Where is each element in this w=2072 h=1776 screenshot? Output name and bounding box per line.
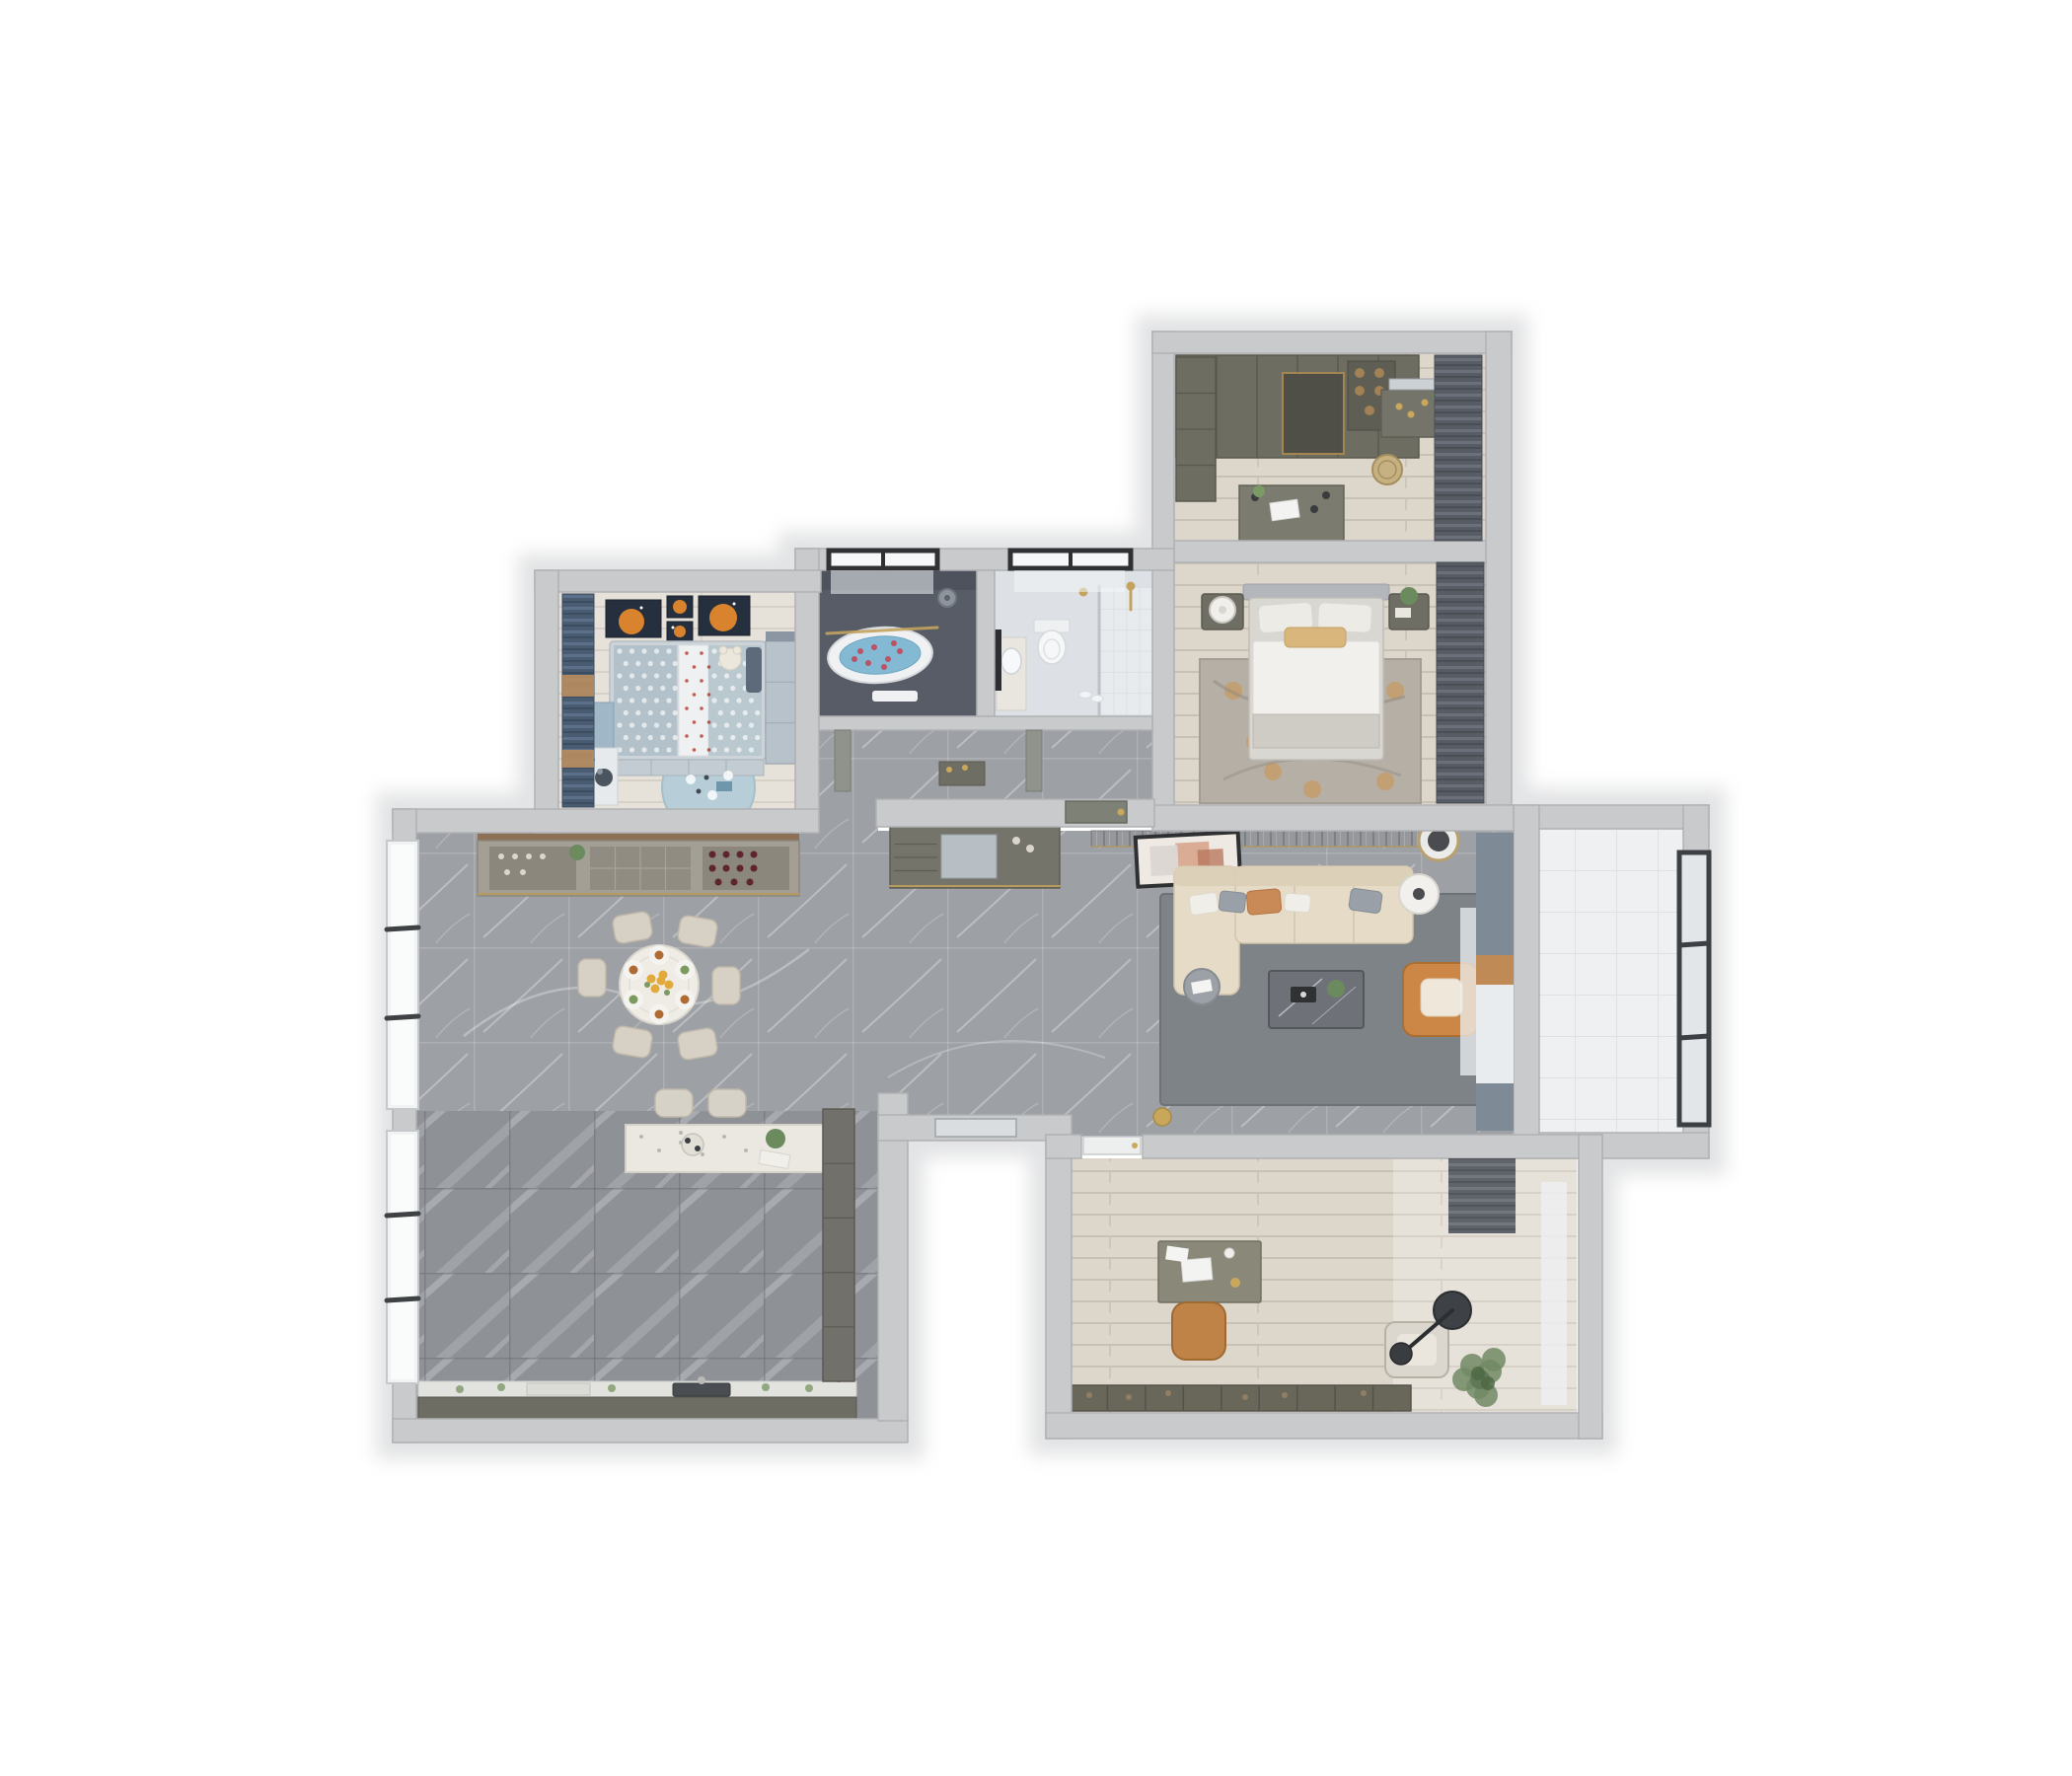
kids-duvet-dots-right xyxy=(749,698,754,703)
kitchen-island-tray xyxy=(682,1134,703,1155)
kitchen-cutting-board xyxy=(527,1383,590,1395)
sideboard-glasses xyxy=(526,853,532,859)
kitchen-island-terrazzo xyxy=(701,1152,704,1156)
dining-chair xyxy=(677,1027,718,1061)
balcony-window-bar xyxy=(1679,1036,1709,1038)
coffee-table-plant xyxy=(1327,980,1345,998)
kitchen-counter-top xyxy=(418,1381,856,1397)
bath-towel xyxy=(872,691,918,702)
sideboard-glasses xyxy=(504,869,510,875)
kitchen-island-terrazzo xyxy=(679,1131,683,1135)
corridor-connector-floor xyxy=(819,797,878,837)
kids-duvet-dots-left xyxy=(648,661,653,666)
study-books xyxy=(1282,1392,1288,1398)
kids-runner-dots xyxy=(700,706,703,710)
kids-duvet-dots-left xyxy=(673,735,678,740)
coffee-table-cup xyxy=(1300,992,1306,998)
kitchen-counter-greens xyxy=(805,1384,813,1392)
kids-curtain-tan-band xyxy=(562,750,594,768)
living-curtain-bottom xyxy=(1476,1083,1514,1131)
closet-vanity-cosmetics xyxy=(1422,400,1429,407)
bath-slipper xyxy=(1091,696,1103,703)
sideboard-glasses xyxy=(540,853,546,859)
sideboard-glasses xyxy=(520,869,526,875)
kitchen-faucet xyxy=(698,1376,705,1384)
dining-centerpiece-flowers xyxy=(651,985,660,994)
kids-duvet-dots-right xyxy=(749,722,754,727)
kitchen-island-terrazzo xyxy=(657,1148,661,1152)
bathtub-rose-petals xyxy=(851,656,857,662)
study-corner-curtain xyxy=(1448,1158,1516,1233)
kids-duvet-dots-left xyxy=(660,686,665,691)
wine-bottles xyxy=(737,851,744,858)
wine-bottles xyxy=(709,851,716,858)
wall xyxy=(1152,332,1512,353)
wall xyxy=(1579,1135,1602,1439)
bathtub-rose-petals xyxy=(891,640,897,646)
study-plant-leaves-dark xyxy=(1471,1367,1485,1380)
dining-chair xyxy=(612,911,653,944)
kids-runner-dots xyxy=(685,651,689,655)
closet-vanity-cosmetics xyxy=(1396,404,1403,410)
kids-duvet-dots-left xyxy=(629,673,634,678)
closet-desk-items xyxy=(1310,505,1318,513)
kids-picture-planet xyxy=(674,626,686,637)
kids-duvet-dots-right xyxy=(718,735,723,740)
kids-duvet-dots-left xyxy=(624,686,629,691)
kids-duvet-dots-left xyxy=(673,686,678,691)
wall xyxy=(535,570,821,592)
study-sheer-curtain xyxy=(1541,1182,1567,1405)
kids-duvet-dots-left xyxy=(617,722,622,727)
kids-duvet-dots-right xyxy=(755,735,760,740)
kids-picture-planet xyxy=(709,604,737,631)
balcony-window-bar xyxy=(1679,943,1709,945)
kids-duvet-dots-left xyxy=(648,710,653,715)
dining-centerpiece-flowers xyxy=(665,981,674,990)
kids-teddy-ear xyxy=(733,646,741,654)
kids-rug-toys-white xyxy=(723,771,733,780)
master-pillow-accent xyxy=(1285,628,1346,647)
bathtub-rose-petals xyxy=(857,648,863,654)
kids-duvet-dots-left xyxy=(660,710,665,715)
wine-bottles xyxy=(715,879,722,886)
dining-food-green xyxy=(629,996,638,1004)
kids-rug-toy-blue xyxy=(716,781,732,791)
master-nightstand-plant xyxy=(1400,587,1418,605)
wall xyxy=(1046,1135,1072,1439)
living-side-table-decor xyxy=(1413,888,1425,900)
dining-window-glass xyxy=(391,845,414,1105)
entry-cabinet-mirror xyxy=(941,835,997,878)
kids-duvet-dots-right xyxy=(736,698,741,703)
study-desk-mug xyxy=(1224,1248,1234,1258)
kids-duvet-dots-left xyxy=(641,698,646,703)
wall xyxy=(1514,805,1539,1158)
shower-head-core xyxy=(944,595,950,601)
kids-duvet-dots-right xyxy=(711,648,716,653)
wall xyxy=(1046,1135,1081,1158)
kitchen-counter-greens xyxy=(456,1385,464,1393)
kids-duvet-dots-left xyxy=(629,648,634,653)
kids-duvet-dots-left xyxy=(654,698,659,703)
sideboard-glasses xyxy=(512,853,518,859)
kids-duvet-dots-left xyxy=(635,686,640,691)
bathroom-dark-window-light xyxy=(831,570,933,594)
kids-bed-runner xyxy=(679,645,708,756)
kids-duvet-dots-left xyxy=(641,722,646,727)
kids-wardrobe xyxy=(766,641,795,764)
wall xyxy=(1486,332,1512,807)
kids-rug-toys-white xyxy=(707,790,717,800)
sofa-pillow xyxy=(1189,892,1220,916)
kitchen-island-terrazzo xyxy=(639,1135,643,1139)
kids-runner-dots xyxy=(707,748,711,752)
study-books xyxy=(1165,1390,1171,1396)
kids-duvet-dots-left xyxy=(666,673,671,678)
bathtub-rose-petals xyxy=(881,664,887,670)
kids-picture-stars xyxy=(672,627,675,629)
master-rug-orange-patches xyxy=(1303,780,1321,798)
wall xyxy=(878,1093,908,1421)
closet-curtain xyxy=(1435,355,1482,541)
kids-picture-stars xyxy=(640,607,643,610)
kitchen-tall-cabinet xyxy=(823,1109,854,1381)
kids-picture-planet xyxy=(619,609,644,634)
corridor-console-decor xyxy=(946,767,952,773)
sofa-pillow xyxy=(1284,893,1310,913)
closet-desk-papers xyxy=(1270,499,1299,521)
bar-stool xyxy=(708,1089,746,1117)
bathtub-rose-petals xyxy=(871,644,877,650)
kids-runner-dots xyxy=(707,693,711,697)
wine-bottles xyxy=(751,851,758,858)
kids-duvet-dots-left xyxy=(641,673,646,678)
study-books xyxy=(1086,1392,1092,1398)
wall xyxy=(1152,805,1514,831)
dining-chair xyxy=(612,1025,653,1059)
sideboard-recess xyxy=(489,847,576,890)
study-bookshelf xyxy=(1070,1385,1411,1411)
living-floor-strip xyxy=(1058,1111,1514,1137)
dining-food-warm xyxy=(681,996,690,1004)
kids-runner-dots xyxy=(685,734,689,738)
wall xyxy=(393,1419,908,1443)
kids-duvet-dots-left xyxy=(673,661,678,666)
kitchen-island-terrazzo xyxy=(744,1148,748,1152)
kids-duvet-dots-right xyxy=(743,735,748,740)
wine-bottles xyxy=(737,865,744,872)
corridor-floor xyxy=(819,728,1152,803)
wine-bottles xyxy=(747,879,754,886)
kids-duvet-dots-right xyxy=(724,698,729,703)
kids-runner-dots xyxy=(693,693,697,697)
kids-wardrobe-shelf xyxy=(766,631,795,641)
sofa-pillow xyxy=(1219,891,1246,914)
dining-window-bar xyxy=(387,927,418,929)
study-door-handle xyxy=(1132,1143,1138,1148)
kids-duvet-dots-right xyxy=(736,722,741,727)
living-gold-stool xyxy=(1153,1108,1171,1126)
bathtub-rose-petals xyxy=(897,648,903,654)
living-curtain-tan xyxy=(1476,955,1514,985)
kitchen-window-bar xyxy=(387,1214,418,1216)
study-desk-gold-cup xyxy=(1230,1278,1240,1288)
closet-shelf-bags xyxy=(1355,368,1365,378)
kids-curtain xyxy=(562,594,594,807)
kids-duvet-dots-right xyxy=(730,686,735,691)
study-office-chair xyxy=(1172,1302,1225,1360)
study-books xyxy=(1361,1390,1367,1396)
kids-duvet-dots-left xyxy=(629,698,634,703)
kids-duvet-dots-left xyxy=(635,661,640,666)
bathroom-door xyxy=(835,730,851,791)
kids-duvet-dots-right xyxy=(730,710,735,715)
wine-bottles xyxy=(723,851,730,858)
master-nightstand-book xyxy=(1395,608,1411,618)
kids-teddy-ear xyxy=(719,646,727,654)
kids-duvet-dots-right xyxy=(711,698,716,703)
kids-duvet-dots-left xyxy=(635,735,640,740)
kitchen-counter-front xyxy=(418,1397,856,1421)
kids-duvet-dots-left xyxy=(654,722,659,727)
kids-picture-planet xyxy=(673,600,687,614)
kids-rug-toys-dark xyxy=(697,789,702,794)
kids-duvet-dots-left xyxy=(629,722,634,727)
kids-duvet-dots-right xyxy=(724,747,729,752)
kids-desk-items xyxy=(597,769,603,775)
kids-duvet-dots-left xyxy=(666,722,671,727)
kids-runner-dots xyxy=(693,748,697,752)
master-curtain xyxy=(1437,562,1484,803)
kids-duvet-dots-left xyxy=(654,648,659,653)
kitchen-island xyxy=(626,1125,823,1172)
closet-basket xyxy=(1372,455,1402,484)
kitchen-island-plant xyxy=(766,1129,785,1148)
master-rug-orange-patches xyxy=(1376,773,1394,790)
kids-duvet-dots-left xyxy=(641,648,646,653)
accent-armchair-cushion xyxy=(1421,979,1462,1016)
kids-pillow-dark xyxy=(746,647,762,693)
kids-duvet-dots-right xyxy=(718,686,723,691)
kids-duvet-dots-left xyxy=(660,735,665,740)
living-curtain-top xyxy=(1476,833,1514,955)
service-niche-door xyxy=(935,1119,1016,1137)
kids-duvet-dots-right xyxy=(718,710,723,715)
wall xyxy=(1046,1413,1602,1439)
closet-shelf-bags xyxy=(1355,386,1365,396)
kids-duvet-dots-left xyxy=(666,698,671,703)
sofa-backrest xyxy=(1174,866,1413,886)
kids-duvet-dots-right xyxy=(736,747,741,752)
kids-duvet-dots-right xyxy=(730,735,735,740)
kids-runner-dots xyxy=(693,665,697,669)
balcony-window xyxy=(1679,852,1709,1125)
kids-duvet-dots-right xyxy=(743,710,748,715)
bathroom-mirror-cabinet xyxy=(995,629,1001,691)
kids-runner-dots xyxy=(700,734,703,738)
kids-duvet-dots-left xyxy=(673,710,678,715)
bathroom-basin xyxy=(1001,648,1021,674)
wine-bottles xyxy=(723,865,730,872)
dining-chair xyxy=(578,959,606,997)
entry-cabinet-decor xyxy=(1012,837,1020,845)
closet-vanity-mirror xyxy=(1389,379,1435,390)
wall xyxy=(1152,332,1174,817)
bathroom-door xyxy=(1026,730,1042,791)
living-ceiling-light-core xyxy=(1428,830,1449,851)
sofa-pillow xyxy=(1349,888,1383,914)
bathroom-light-window-light xyxy=(1014,570,1125,592)
kids-duvet-dots-left xyxy=(624,735,629,740)
kitchen-window-glass xyxy=(391,1135,414,1379)
bath-slipper xyxy=(1079,692,1091,699)
dining-centerpiece-flowers xyxy=(657,977,666,986)
dining-chair xyxy=(677,915,718,948)
kids-runner-dots xyxy=(685,679,689,683)
kids-duvet-dots-left xyxy=(617,648,622,653)
kids-duvet-dots-left xyxy=(654,673,659,678)
dining-food-green xyxy=(681,966,690,975)
floor-plan-canvas xyxy=(0,0,2072,1776)
closet-shelf-bags xyxy=(1365,406,1374,415)
kitchen-counter-greens xyxy=(497,1383,505,1391)
wall xyxy=(819,716,1152,730)
study-plant-leaves xyxy=(1482,1348,1506,1371)
kids-duvet-dots-left xyxy=(624,710,629,715)
kids-duvet-dots-left xyxy=(617,698,622,703)
kids-duvet-dots-right xyxy=(724,722,729,727)
closet-shelf-bags xyxy=(1374,368,1384,378)
wine-bottles xyxy=(751,865,758,872)
kids-runner-dots xyxy=(707,665,711,669)
kids-duvet-dots-left xyxy=(666,747,671,752)
dining-chair xyxy=(712,967,740,1004)
wall xyxy=(535,570,558,833)
corridor-console xyxy=(939,762,985,785)
master-bed-blanket xyxy=(1253,714,1379,748)
dining-food-warm xyxy=(629,966,638,975)
wine-bottles xyxy=(709,865,716,872)
kids-duvet-dots-left xyxy=(629,747,634,752)
sofa-pillow xyxy=(1246,889,1282,916)
kids-runner-dots xyxy=(685,706,689,710)
kitchen-island-cups xyxy=(685,1138,691,1144)
kids-duvet-dots-left xyxy=(624,661,629,666)
kids-duvet-dots-right xyxy=(711,673,716,678)
entry-door-handle xyxy=(1118,809,1125,816)
kids-curtain-tan-band xyxy=(562,675,594,697)
kids-duvet-dots-left xyxy=(666,648,671,653)
bathtub-rose-petals xyxy=(865,660,871,666)
kids-duvet-dots-right xyxy=(755,710,760,715)
kitchen-counter-greens xyxy=(762,1383,770,1391)
kids-duvet-dots-left xyxy=(648,735,653,740)
closet-desk-flowers xyxy=(1253,485,1265,497)
kitchen-sink xyxy=(673,1383,730,1396)
living-curtain-sheer xyxy=(1476,985,1514,1083)
wall xyxy=(1143,1135,1602,1158)
kids-duvet-dots-left xyxy=(641,747,646,752)
kids-runner-dots xyxy=(700,679,703,683)
kids-duvet-dots-right xyxy=(724,673,729,678)
study-plant-leaves-dark xyxy=(1481,1376,1495,1390)
kids-runner-dots xyxy=(700,651,703,655)
wall xyxy=(1174,541,1486,562)
floor-plan-render xyxy=(0,0,2072,1776)
study-books xyxy=(1126,1394,1132,1400)
study-side-table-black xyxy=(1390,1343,1412,1365)
sideboard-glasses xyxy=(498,853,504,859)
kitchen-counter-greens xyxy=(608,1384,616,1392)
kids-duvet-dots-left xyxy=(654,747,659,752)
closet-desk-items xyxy=(1322,491,1330,499)
living-sheer-inner xyxy=(1460,908,1476,1075)
kids-rug-toys-dark xyxy=(704,776,709,780)
kids-picture-stars xyxy=(733,603,736,606)
corridor-console-decor xyxy=(962,765,968,771)
closet-vanity-cosmetics xyxy=(1408,411,1415,418)
dining-centerpiece-greens xyxy=(664,990,670,996)
kids-duvet-dots-right xyxy=(736,673,741,678)
study-books xyxy=(1242,1394,1248,1400)
dining-food-warm xyxy=(655,1010,664,1019)
kids-duvet-dots-left xyxy=(660,661,665,666)
kids-duvet-dots-left xyxy=(635,710,640,715)
balcony-floor xyxy=(1537,829,1683,1133)
kitchen-island-cups xyxy=(695,1146,701,1151)
kids-rug-toys-white xyxy=(686,775,696,784)
closet-wardrobe-glass-door xyxy=(1283,373,1344,454)
bar-stool xyxy=(655,1089,693,1117)
kids-duvet-dots-left xyxy=(617,673,622,678)
kids-duvet-dots-right xyxy=(711,747,716,752)
dining-window-bar xyxy=(387,1016,418,1018)
kitchen-island-terrazzo xyxy=(722,1135,726,1139)
kids-duvet-dots-right xyxy=(749,747,754,752)
wall xyxy=(977,570,995,716)
bathtub-rose-petals xyxy=(885,656,891,662)
entry-cabinet-decor xyxy=(1026,845,1034,852)
kids-runner-dots xyxy=(707,720,711,724)
master-table-lamp-core xyxy=(1219,606,1226,614)
kitchen-window-bar xyxy=(387,1298,418,1300)
wall xyxy=(393,809,819,833)
dining-centerpiece-greens xyxy=(644,982,650,988)
kids-duvet-dots-left xyxy=(648,686,653,691)
sideboard-plant xyxy=(569,845,585,860)
dining-food-warm xyxy=(655,951,664,960)
wine-bottles xyxy=(731,879,738,886)
kids-runner-dots xyxy=(693,720,697,724)
kids-duvet-dots-right xyxy=(711,722,716,727)
